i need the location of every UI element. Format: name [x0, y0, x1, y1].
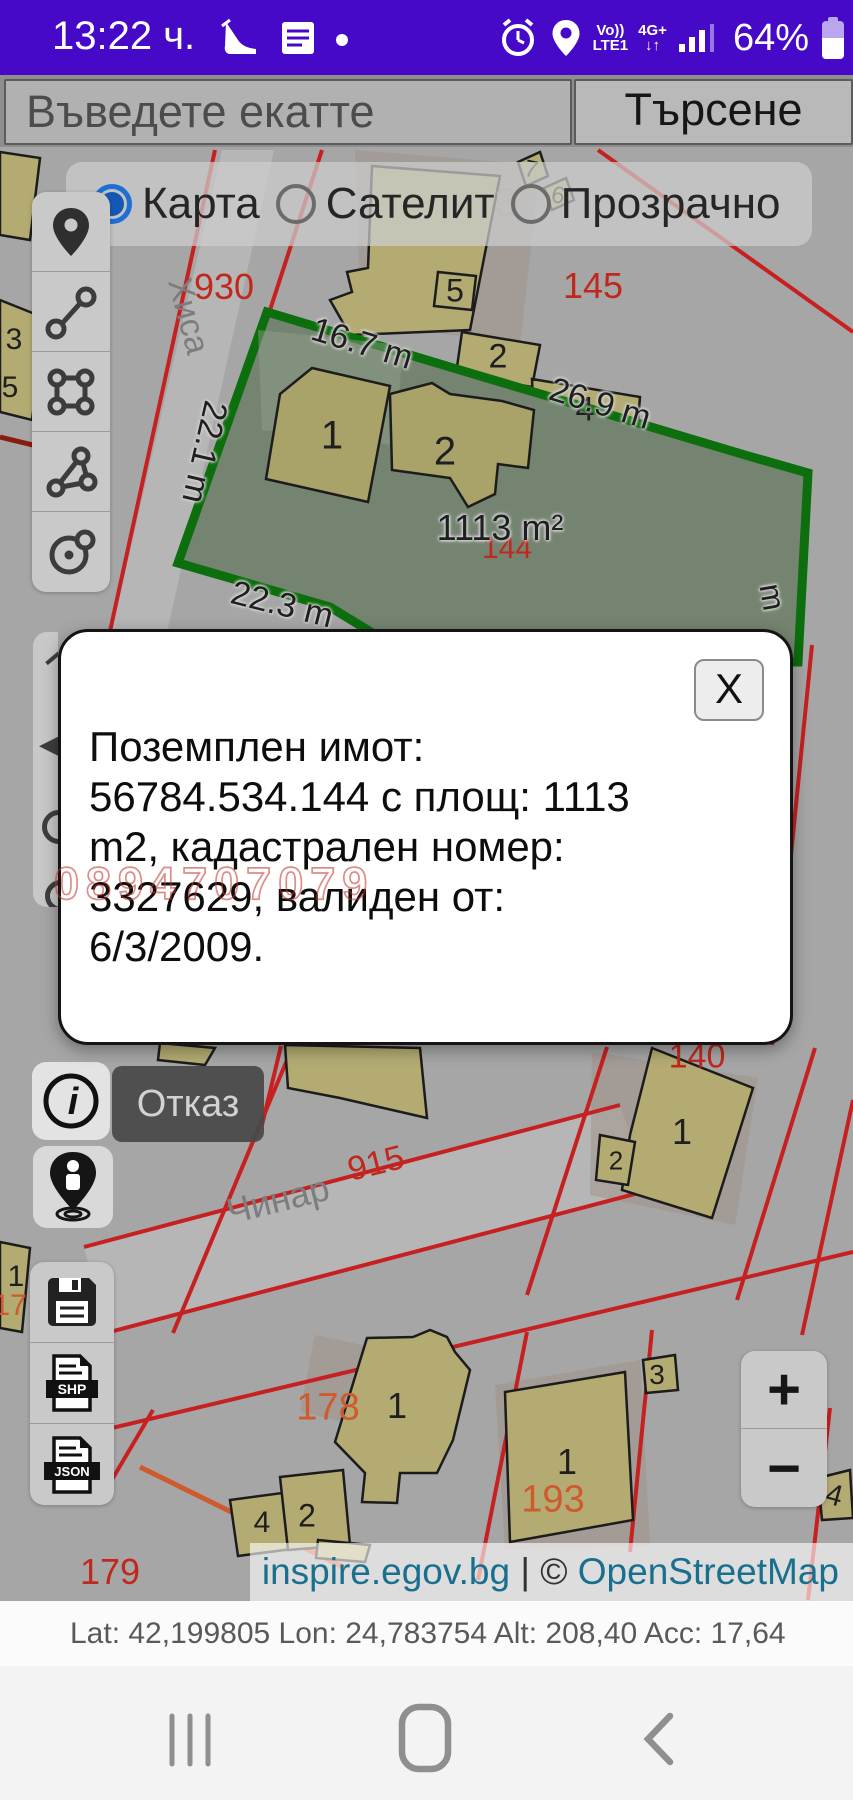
- recents-button[interactable]: [160, 1712, 220, 1768]
- alarm-icon: [497, 17, 539, 59]
- battery-icon: [819, 14, 847, 62]
- status-bar: 13:22 ч. Vo))LTE1: [0, 0, 853, 75]
- signal-bars-icon: [677, 18, 723, 58]
- layer-option-прозрачно[interactable]: Прозрачно: [511, 179, 781, 229]
- export-json-button[interactable]: JSON: [30, 1424, 114, 1505]
- inspire-link[interactable]: inspire.egov.bg: [262, 1551, 510, 1592]
- layer-option-label: Сателит: [326, 179, 495, 229]
- gps-status-line: Lat: 42,199805 Lon: 24,783754 Alt: 208,4…: [0, 1601, 853, 1666]
- radio-unselected-icon[interactable]: [276, 184, 316, 224]
- clock-text: 13:22 ч.: [52, 14, 195, 59]
- volte-indicator: Vo))LTE1: [593, 23, 629, 53]
- parcel-info-line: 56784.534.144 с площ: 1113: [89, 772, 761, 822]
- network-4g-indicator: 4G+↓↑: [638, 23, 667, 53]
- zoom-in-button[interactable]: +: [741, 1351, 827, 1429]
- measure-area-icon: [32, 432, 110, 512]
- measure-area-button[interactable]: [32, 432, 110, 512]
- location-pin-icon: [549, 17, 583, 59]
- home-button[interactable]: [398, 1703, 452, 1773]
- notes-icon: [278, 18, 318, 58]
- zoom-out-button[interactable]: −: [741, 1429, 827, 1507]
- info-icon: i: [40, 1070, 102, 1132]
- parcel-info-line: 6/3/2009.: [89, 922, 761, 972]
- measure-polygon-icon: [32, 352, 110, 432]
- shoe-steps-icon: [218, 18, 262, 58]
- layer-option-label: Прозрачно: [561, 179, 781, 229]
- person-pin-icon: [41, 1150, 105, 1224]
- android-nav-bar: [0, 1666, 853, 1800]
- search-input[interactable]: [4, 79, 572, 145]
- layer-switcher: КартаСателитПрозрачно: [66, 162, 812, 246]
- parcel-info-text: Поземплен имот:56784.534.144 с площ: 111…: [89, 722, 761, 972]
- measure-circle-button[interactable]: [32, 512, 110, 592]
- zoom-controls: + −: [741, 1351, 827, 1507]
- json-file-icon: JSON: [42, 1434, 102, 1496]
- shp-file-icon: SHP: [42, 1352, 102, 1414]
- partial-arrow-icon: ◀: [39, 727, 58, 762]
- save-button[interactable]: [30, 1262, 114, 1343]
- measure-circle-icon: [32, 512, 110, 592]
- parcel-info-dialog: X Поземплен имот:56784.534.144 с площ: 1…: [58, 629, 793, 1045]
- layer-option-карта[interactable]: Карта: [92, 179, 260, 229]
- phone-watermark: 0894707079: [54, 858, 374, 910]
- street-view-button[interactable]: [33, 1146, 113, 1228]
- radio-unselected-icon[interactable]: [511, 184, 551, 224]
- measure-line-icon: [32, 272, 110, 352]
- save-floppy-icon: [43, 1273, 101, 1331]
- export-shp-button[interactable]: SHP: [30, 1343, 114, 1424]
- export-toolbar: SHP JSON: [30, 1262, 114, 1505]
- parcel-info-line: Поземплен имот:: [89, 722, 761, 772]
- cancel-button[interactable]: Отказ: [112, 1066, 264, 1142]
- battery-percent: 64%: [733, 17, 809, 60]
- info-button[interactable]: i: [32, 1062, 110, 1140]
- osm-link[interactable]: OpenStreetMap: [578, 1551, 839, 1592]
- search-button[interactable]: Търсене: [574, 79, 853, 145]
- measure-line-button[interactable]: [32, 272, 110, 352]
- app-screen: { "colors":{"statusbar_bg":"#4609c8","ac…: [0, 0, 853, 1800]
- layer-option-сателит[interactable]: Сателит: [276, 179, 495, 229]
- notification-dot-icon: [334, 18, 350, 58]
- shp-label: SHP: [58, 1381, 87, 1397]
- measure-polygon-button[interactable]: [32, 352, 110, 432]
- close-button[interactable]: X: [694, 659, 764, 721]
- map-toolbar: [32, 192, 110, 592]
- map-attribution: inspire.egov.bg | © OpenStreetMap: [250, 1543, 853, 1601]
- svg-text:i: i: [68, 1081, 80, 1123]
- search-row: Търсене: [0, 75, 853, 147]
- locate-button[interactable]: [32, 192, 110, 272]
- json-label: JSON: [54, 1464, 89, 1479]
- layer-option-label: Карта: [142, 179, 260, 229]
- map-pin-icon: [32, 192, 110, 272]
- back-button[interactable]: [638, 1710, 680, 1768]
